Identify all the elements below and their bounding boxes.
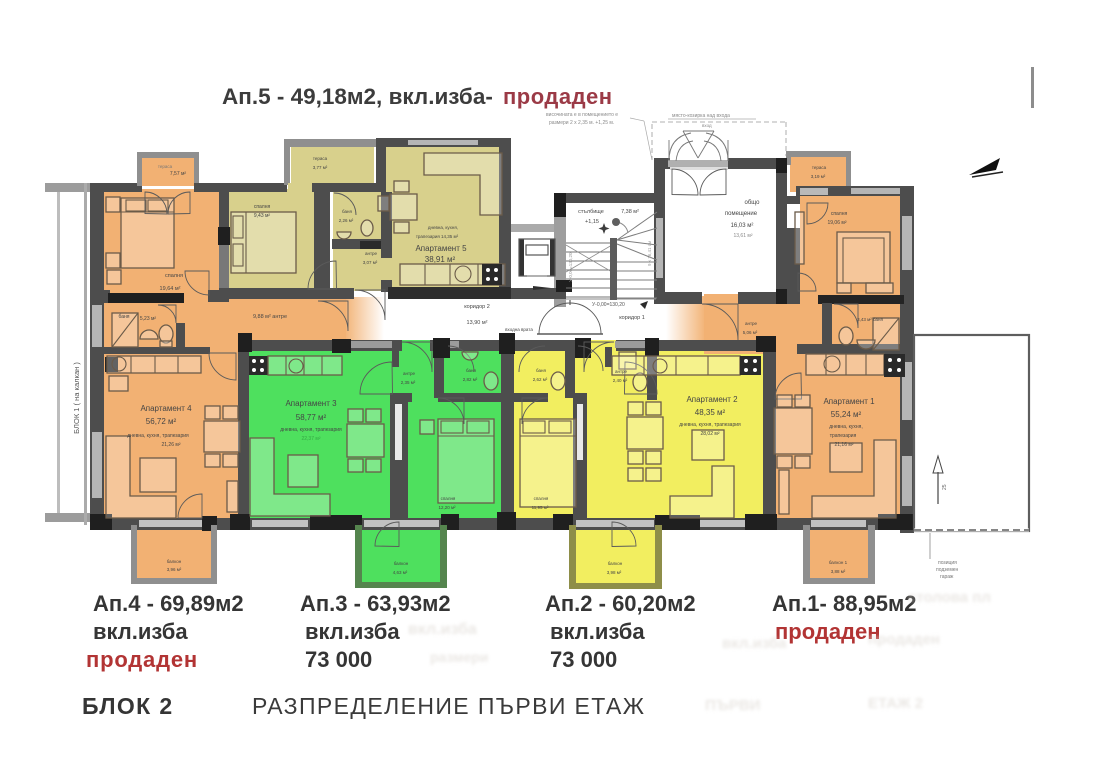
svg-text:столова пл: столова пл bbox=[908, 589, 991, 606]
svg-text:У-0,00=130,20: У-0,00=130,20 bbox=[592, 302, 625, 308]
svg-text:антре: антре bbox=[365, 251, 378, 256]
svg-text:балкон 1: балкон 1 bbox=[829, 560, 848, 565]
svg-text:4,63 м²: 4,63 м² bbox=[393, 570, 408, 575]
svg-text:11,95 м²: 11,95 м² bbox=[532, 505, 549, 510]
svg-text:Ап.2 - 60,20м2: Ап.2 - 60,20м2 bbox=[545, 591, 696, 616]
svg-text:продаден: продаден bbox=[503, 84, 613, 109]
svg-text:73 000: 73 000 bbox=[305, 647, 372, 672]
svg-text:3,98 м²: 3,98 м² bbox=[607, 570, 622, 575]
svg-text:баня: баня bbox=[119, 314, 130, 320]
svg-text:вкл.изба: вкл.изба bbox=[93, 619, 188, 644]
svg-text:56,72 м²: 56,72 м² bbox=[146, 417, 177, 426]
svg-text:общо: общо bbox=[745, 200, 761, 206]
svg-text:19,64 м²: 19,64 м² bbox=[160, 286, 181, 292]
svg-text:ЕТАЖ 2: ЕТАЖ 2 bbox=[868, 695, 923, 712]
svg-text:Ап.4 - 69,89м2: Ап.4 - 69,89м2 bbox=[93, 591, 244, 616]
svg-text:дневна, кухня,: дневна, кухня, bbox=[829, 424, 863, 430]
svg-text:балкон: балкон bbox=[394, 561, 409, 566]
svg-text:РАЗПРЕДЕЛЕНИЕ ПЪРВИ ЕТАЖ: РАЗПРЕДЕЛЕНИЕ ПЪРВИ ЕТАЖ bbox=[252, 693, 645, 719]
svg-text:3,88 м²: 3,88 м² bbox=[831, 569, 846, 574]
svg-text:коридор 1: коридор 1 bbox=[619, 315, 645, 321]
svg-text:5,23 м²: 5,23 м² bbox=[140, 316, 157, 322]
svg-text:балкон: балкон bbox=[167, 559, 182, 564]
svg-text:3,43 м² баня: 3,43 м² баня bbox=[857, 317, 883, 322]
svg-text:помещение: помещение bbox=[725, 211, 758, 217]
svg-text:дневна, кухня, трапезария: дневна, кухня, трапезария bbox=[127, 433, 189, 439]
svg-text:У-0,00=130,20: У-0,00=130,20 bbox=[568, 252, 573, 282]
svg-text:2,35 м²: 2,35 м² bbox=[401, 380, 416, 385]
svg-text:тераса: тераса bbox=[812, 165, 827, 170]
svg-text:продаден: продаден bbox=[775, 619, 881, 644]
svg-text:Апартамент 4: Апартамент 4 bbox=[140, 404, 192, 413]
svg-text:трапезария: трапезария bbox=[830, 433, 857, 439]
svg-text:вкл.изба: вкл.изба bbox=[305, 619, 400, 644]
svg-text:7,38 м²: 7,38 м² bbox=[621, 209, 639, 215]
svg-text:12,20 м²: 12,20 м² bbox=[438, 505, 456, 510]
svg-text:продаден: продаден bbox=[86, 647, 198, 672]
svg-text:стълбище: стълбище bbox=[578, 209, 604, 215]
svg-text:13,61 м²: 13,61 м² bbox=[733, 233, 752, 239]
svg-text:3,96 м²: 3,96 м² bbox=[167, 567, 182, 572]
svg-text:58,77 м²: 58,77 м² bbox=[296, 413, 327, 422]
svg-text:баня: баня bbox=[342, 209, 352, 214]
svg-text:Ап.5 - 49,18м2, вкл.изба-: Ап.5 - 49,18м2, вкл.изба- bbox=[222, 84, 493, 109]
svg-text:дневна, кухня, трапезария: дневна, кухня, трапезария bbox=[280, 427, 342, 433]
svg-text:вкл.изба: вкл.изба bbox=[550, 619, 645, 644]
svg-text:спалня: спалня bbox=[441, 496, 456, 501]
svg-text:21,26 м²: 21,26 м² bbox=[161, 442, 180, 448]
svg-text:Апартамент 1: Апартамент 1 bbox=[823, 397, 875, 406]
svg-text:Апартамент 2: Апартамент 2 bbox=[686, 395, 738, 404]
svg-text:Апартамент 3: Апартамент 3 bbox=[285, 399, 337, 408]
svg-text:25: 25 bbox=[942, 484, 948, 490]
svg-text:дневна, кухня,: дневна, кухня, bbox=[428, 225, 458, 230]
svg-text:антре: антре bbox=[745, 321, 758, 326]
svg-text:3,07 м²: 3,07 м² bbox=[363, 260, 378, 265]
svg-text:БЛОК 1 ( на калкан ): БЛОК 1 ( на калкан ) bbox=[72, 362, 81, 434]
svg-text:спалня: спалня bbox=[165, 273, 183, 279]
svg-text:2,26 м²: 2,26 м² bbox=[339, 218, 354, 223]
svg-text:дневна, кухня, трапезария: дневна, кухня, трапезария bbox=[679, 422, 741, 428]
svg-text:9 х 16,41 см: 9 х 16,41 см bbox=[647, 241, 652, 266]
svg-text:височината е в помещението е: височината е в помещението е bbox=[546, 112, 618, 118]
svg-text:размери 2 х 2,35 м. +1,25 м.: размери 2 х 2,35 м. +1,25 м. bbox=[549, 120, 614, 126]
svg-text:9,43 м²: 9,43 м² bbox=[254, 213, 271, 219]
svg-text:28,02 м²: 28,02 м² bbox=[700, 431, 719, 437]
svg-text:антре: антре bbox=[615, 369, 628, 374]
svg-text:Ап.1- 88,95м2: Ап.1- 88,95м2 bbox=[772, 591, 917, 616]
svg-text:позиция: позиция bbox=[938, 560, 957, 566]
svg-text:5,06 м²: 5,06 м² bbox=[743, 330, 758, 335]
svg-text:16,03 м²: 16,03 м² bbox=[731, 223, 754, 229]
svg-text:73 000: 73 000 bbox=[550, 647, 617, 672]
svg-text:БЛОК 2: БЛОК 2 bbox=[82, 693, 174, 719]
svg-text:вкл.изба: вкл.изба bbox=[408, 621, 477, 638]
svg-text:38,91 м²: 38,91 м² bbox=[425, 255, 456, 264]
svg-text:подземен: подземен bbox=[936, 567, 959, 573]
svg-text:55,24 м²: 55,24 м² bbox=[831, 410, 862, 419]
svg-text:19,06 м²: 19,06 м² bbox=[827, 220, 846, 226]
svg-text:2,40 м²: 2,40 м² bbox=[613, 378, 628, 383]
svg-text:продаден: продаден bbox=[868, 631, 940, 648]
svg-text:балкон: балкон bbox=[608, 561, 623, 566]
svg-text:коридор 2: коридор 2 bbox=[464, 304, 490, 310]
svg-text:ПЪРВИ: ПЪРВИ bbox=[705, 697, 760, 714]
svg-text:гараж: гараж bbox=[940, 574, 954, 580]
svg-text:Апартамент 5: Апартамент 5 bbox=[415, 244, 467, 253]
svg-text:спалня: спалня bbox=[831, 211, 848, 217]
svg-text:2,82 м²: 2,82 м² bbox=[463, 377, 478, 382]
svg-text:Ап.3 - 63,93м2: Ап.3 - 63,93м2 bbox=[300, 591, 451, 616]
svg-text:входна врата: входна врата bbox=[505, 327, 533, 332]
svg-text:баня: баня bbox=[466, 368, 476, 373]
svg-text:2,62 м²: 2,62 м² bbox=[533, 377, 548, 382]
svg-text:тераса: тераса bbox=[313, 156, 328, 161]
svg-text:13,90 м²: 13,90 м² bbox=[467, 320, 488, 326]
svg-text:3,19 м²: 3,19 м² bbox=[811, 174, 826, 179]
svg-text:21,16 м²: 21,16 м² bbox=[834, 442, 853, 448]
svg-text:размери: размери bbox=[430, 649, 488, 665]
svg-text:място-козирка над входа: място-козирка над входа bbox=[672, 113, 730, 119]
svg-text:трапезария 14,35 м²: трапезария 14,35 м² bbox=[416, 234, 459, 239]
svg-text:вкл.изба: вкл.изба bbox=[722, 635, 787, 652]
svg-text:спалня: спалня bbox=[254, 204, 271, 210]
svg-text:антре: антре bbox=[403, 371, 416, 376]
svg-text:22,37 м²: 22,37 м² bbox=[301, 436, 320, 442]
svg-text:7,57 м²: 7,57 м² bbox=[170, 171, 187, 177]
svg-text:3,77 м²: 3,77 м² bbox=[313, 165, 328, 170]
svg-text:+1,15: +1,15 bbox=[585, 219, 599, 225]
svg-text:9,88 м² антре: 9,88 м² антре bbox=[253, 314, 287, 320]
svg-text:баня: баня bbox=[536, 368, 546, 373]
svg-text:вход: вход bbox=[702, 123, 712, 128]
svg-text:тераса: тераса bbox=[158, 164, 173, 169]
svg-text:48,35 м²: 48,35 м² bbox=[695, 408, 726, 417]
svg-text:спалня: спалня bbox=[534, 496, 549, 501]
